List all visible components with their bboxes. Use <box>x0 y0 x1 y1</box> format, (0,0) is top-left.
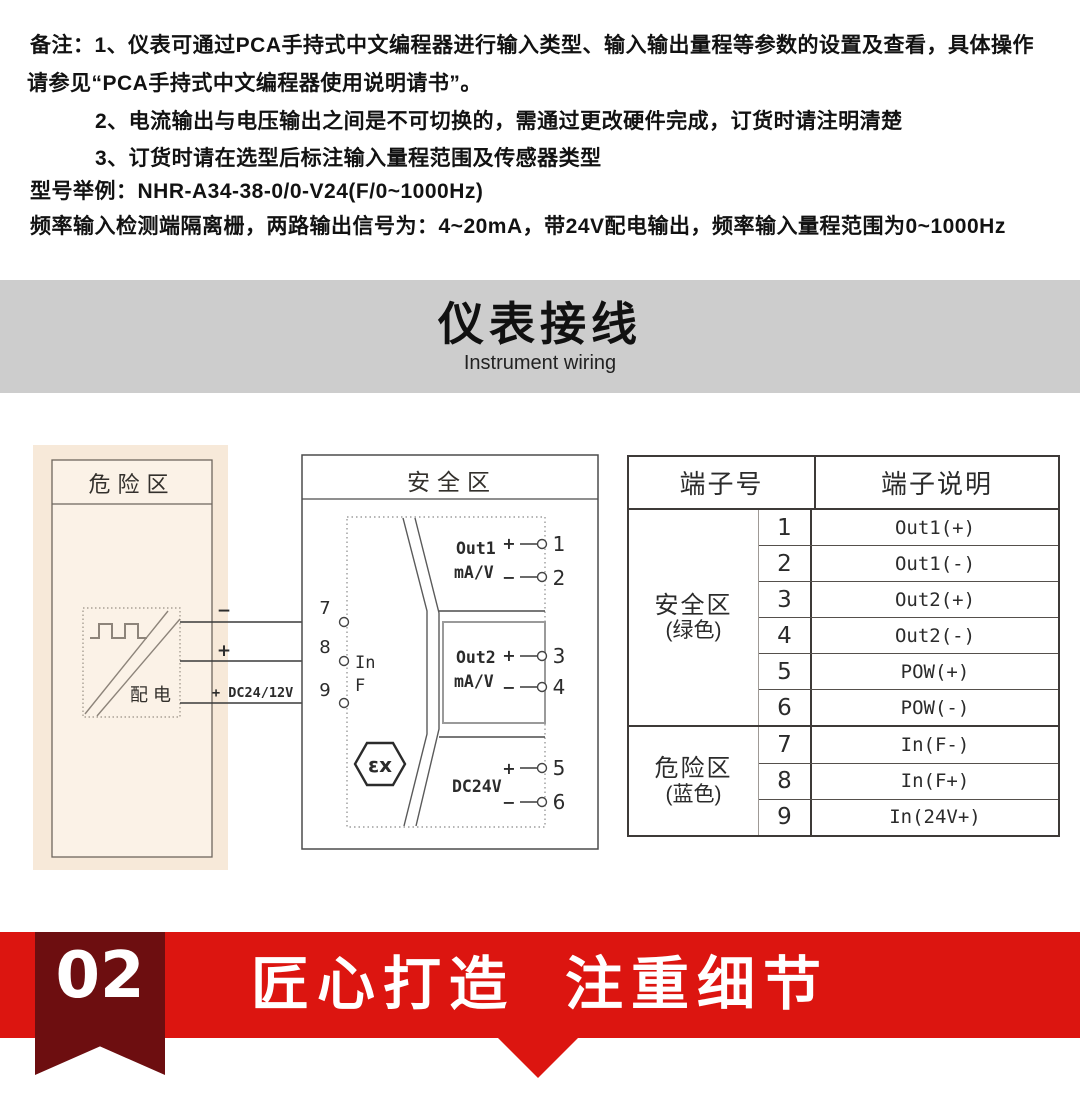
remark-line-4: 3、订货时请在选型后标注输入量程范围及传感器类型 <box>95 146 602 172</box>
out2-label: Out2 <box>456 648 496 667</box>
section-title: 仪表接线 <box>438 301 642 347</box>
terminal-desc-cell: Out1(-) <box>812 546 1058 581</box>
terminal-table: 端子号 端子说明 安全区 (绿色) 1 Out1(+) 2 Out1(-) <box>627 455 1060 837</box>
table-group-danger-zone: 危险区 (蓝色) 7 In(F-) 8 In(F+) 9 In(24V+) <box>629 725 1058 835</box>
terminal-desc-cell: In(F+) <box>812 764 1058 799</box>
safe-zone-title: 安全区 <box>407 469 497 495</box>
out1-label: Out1 <box>456 539 496 558</box>
danger-zone-title: 危险区 <box>88 472 175 497</box>
power-plus-sign: + <box>502 759 515 778</box>
zone-name: 安全区 <box>655 593 733 619</box>
table-row: 3 Out2(+) <box>759 581 1058 617</box>
terminal-number-1: 1 <box>553 532 566 556</box>
section-subtitle: Instrument wiring <box>464 353 616 373</box>
section-number: 02 <box>55 944 144 1075</box>
terminal-desc-cell: Out2(+) <box>812 582 1058 617</box>
terminal-circle-5 <box>538 764 547 773</box>
zone-cell-safe: 安全区 (绿色) <box>629 510 759 725</box>
terminal-circle-2 <box>538 573 547 582</box>
input-label-in: In <box>355 653 375 673</box>
power-minus-sign: − <box>502 793 515 812</box>
product-detail-page: 备注：1、仪表可通过PCA手持式中文编程器进行输入类型、输入输出量程等参数的设置… <box>0 0 1080 1109</box>
terminal-number-2: 2 <box>553 566 566 590</box>
terminal-desc-cell: Out1(+) <box>812 510 1058 545</box>
terminal-circle-4 <box>538 683 547 692</box>
power-distribution-label: 配电 <box>130 685 176 705</box>
terminal-desc-cell: Out2(-) <box>812 618 1058 653</box>
terminal-circle-7 <box>340 618 349 627</box>
zone-name: 危险区 <box>655 756 733 782</box>
zone-color-note: (蓝色) <box>666 783 722 806</box>
terminal-no-cell: 4 <box>759 618 812 653</box>
table-header-row: 端子号 端子说明 <box>629 457 1058 510</box>
table-body: 安全区 (绿色) 1 Out1(+) 2 Out1(-) 3 Out2(+) <box>629 510 1058 835</box>
terminal-circle-6 <box>538 798 547 807</box>
zone-color-note: (绿色) <box>666 619 722 642</box>
remark-line-2: 请参见“PCA手持式中文编程器使用说明请书”。 <box>27 71 482 97</box>
terminal-number-6: 6 <box>553 790 566 814</box>
terminal-no-cell: 3 <box>759 582 812 617</box>
table-row: 5 POW(+) <box>759 653 1058 689</box>
table-row: 4 Out2(-) <box>759 617 1058 653</box>
table-header-terminal-desc: 端子说明 <box>814 457 1058 508</box>
footer-banner-title: 匠心打造 注重细节 <box>251 956 829 1014</box>
terminal-circle-9 <box>340 699 349 708</box>
terminal-no-cell: 9 <box>759 800 812 835</box>
wire-plus-label: + <box>217 641 231 661</box>
table-row: 1 Out1(+) <box>759 510 1058 545</box>
terminal-number-3: 3 <box>553 644 566 668</box>
table-row: 9 In(24V+) <box>759 799 1058 835</box>
section-number-ribbon: 02 <box>35 932 165 1075</box>
terminal-desc-cell: POW(-) <box>812 690 1058 725</box>
terminal-circle-3 <box>538 652 547 661</box>
terminal-desc-cell: In(24V+) <box>812 800 1058 835</box>
terminal-circle-8 <box>340 657 349 666</box>
terminal-desc-cell: POW(+) <box>812 654 1058 689</box>
table-row: 6 POW(-) <box>759 689 1058 725</box>
wire-minus-label: − <box>217 601 231 621</box>
remark-line-3: 2、电流输出与电压输出之间是不可切换的，需通过更改硬件完成，订货时请注明清楚 <box>95 109 903 135</box>
signal-description-line: 频率输入检测端隔离栅，两路输出信号为：4~20mA，带24V配电输出，频率输入量… <box>30 214 1006 240</box>
terminal-no-cell: 5 <box>759 654 812 689</box>
table-row: 2 Out1(-) <box>759 545 1058 581</box>
terminal-no-cell: 2 <box>759 546 812 581</box>
terminal-circle-1 <box>538 540 547 549</box>
terminal-number-7: 7 <box>319 598 330 619</box>
terminal-number-8: 8 <box>319 637 330 658</box>
terminal-no-cell: 8 <box>759 764 812 799</box>
input-label-f: F <box>355 676 365 696</box>
zone-cell-danger: 危险区 (蓝色) <box>629 727 759 835</box>
terminal-number-5: 5 <box>553 756 566 780</box>
dc24v-label: DC24V <box>452 777 502 796</box>
model-example-line: 型号举例：NHR-A34-38-0/0-V24(F/0~1000Hz) <box>30 179 483 205</box>
terminal-no-cell: 1 <box>759 510 812 545</box>
terminal-desc-cell: In(F-) <box>812 727 1058 762</box>
danger-zone-box <box>52 460 212 857</box>
table-header-terminal-no: 端子号 <box>629 457 814 508</box>
terminal-number-4: 4 <box>553 675 566 699</box>
out1-plus-sign: + <box>502 534 515 553</box>
out2-unit-label: mA/V <box>454 672 494 691</box>
terminal-no-cell: 6 <box>759 690 812 725</box>
table-row: 8 In(F+) <box>759 763 1058 799</box>
table-row: 7 In(F-) <box>759 727 1058 762</box>
wire-power-label: + DC24/12V <box>212 685 293 701</box>
remark-line-1: 备注：1、仪表可通过PCA手持式中文编程器进行输入类型、输入输出量程等参数的设置… <box>30 33 1034 59</box>
banner-pointer-triangle <box>498 1038 578 1078</box>
table-group-safe-zone: 安全区 (绿色) 1 Out1(+) 2 Out1(-) 3 Out2(+) <box>629 510 1058 725</box>
ex-mark-label: εx <box>368 753 392 777</box>
section-banner-wiring: 仪表接线 Instrument wiring <box>0 280 1080 393</box>
out2-minus-sign: − <box>502 678 515 697</box>
terminal-number-9: 9 <box>319 680 330 701</box>
out2-plus-sign: + <box>502 646 515 665</box>
out1-minus-sign: − <box>502 568 515 587</box>
terminal-no-cell: 7 <box>759 727 812 762</box>
out1-unit-label: mA/V <box>454 563 494 582</box>
